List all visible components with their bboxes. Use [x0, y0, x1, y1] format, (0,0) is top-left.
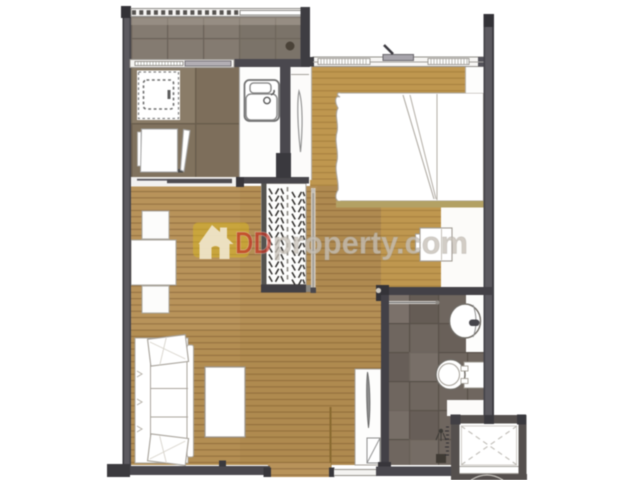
svg-text:DDproperty.com: DDproperty.com — [235, 225, 468, 261]
